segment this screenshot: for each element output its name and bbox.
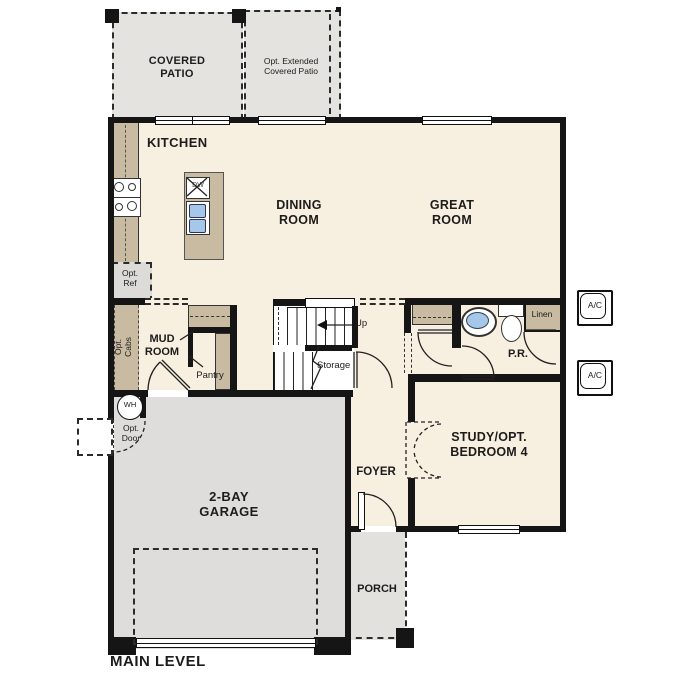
opt-ref-label: Opt. Ref bbox=[112, 268, 148, 288]
great-room-label: GREAT ROOM bbox=[420, 198, 484, 228]
garage-label: 2-BAY GARAGE bbox=[177, 489, 281, 520]
dw-x-lines bbox=[187, 178, 207, 196]
front-door-arc bbox=[363, 494, 396, 527]
mud-door-arc bbox=[148, 362, 160, 390]
foyer-label: FOYER bbox=[349, 466, 403, 480]
storage-door-arc bbox=[356, 352, 392, 388]
up-label: Up bbox=[355, 318, 377, 329]
pr-door-arc bbox=[462, 346, 494, 378]
mudroom-leader-2 bbox=[189, 356, 203, 367]
up-arrow-head bbox=[317, 320, 327, 330]
kitchen-label: KITCHEN bbox=[147, 135, 227, 150]
extended-patio-label: Opt. Extended Covered Patio bbox=[251, 56, 331, 76]
storage-label: Storage bbox=[317, 360, 361, 371]
closet-door-leaf bbox=[418, 330, 452, 333]
covered-patio-label: COVERED PATIO bbox=[128, 55, 226, 81]
dining-room-label: DINING ROOM bbox=[267, 198, 331, 228]
pr-door-leaf bbox=[462, 376, 494, 379]
closet-door-arc bbox=[418, 332, 452, 366]
pantry-label: Pantry bbox=[190, 370, 230, 381]
mud-room-label: MUD ROOM bbox=[134, 333, 190, 359]
floor-plan: DW bbox=[0, 0, 687, 687]
main-level-title: MAIN LEVEL bbox=[110, 653, 270, 671]
pr-label: P.R. bbox=[502, 348, 534, 361]
porch-label: PORCH bbox=[350, 583, 404, 596]
plan-linework bbox=[0, 0, 687, 687]
mud-door-leaf bbox=[160, 360, 190, 390]
linen-label: Linen bbox=[524, 309, 560, 319]
opt-door-label: Opt. Door bbox=[116, 423, 146, 443]
study-label: STUDY/OPT. BEDROOM 4 bbox=[428, 430, 550, 460]
